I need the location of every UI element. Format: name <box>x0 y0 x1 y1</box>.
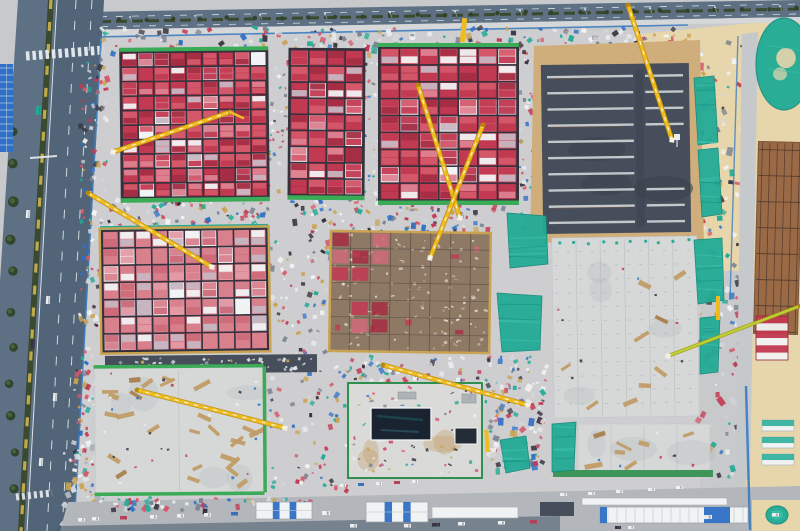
teal-east-b <box>700 316 720 374</box>
warehouse-c <box>432 507 518 518</box>
warehouse-b <box>366 502 428 522</box>
warehouse-a <box>256 502 312 519</box>
teal-east-a <box>694 238 724 304</box>
warehouse-roofline <box>582 498 727 505</box>
plot-scaffold-center <box>329 231 491 353</box>
plot-slab-east <box>552 236 699 418</box>
teal-strips-northeast-b <box>698 148 722 217</box>
warehouse-d <box>600 507 748 523</box>
aerial-construction-photo <box>0 0 800 531</box>
teal-strips-northeast-a <box>694 76 718 145</box>
plot-red-north-a <box>287 48 365 201</box>
plot-slab-southeast <box>578 424 716 472</box>
rebar-mat-east <box>753 141 800 334</box>
construction-site-scene <box>0 0 800 531</box>
plot-basement-south <box>348 383 482 478</box>
shed-dark <box>540 502 574 516</box>
roadside-building <box>0 64 13 152</box>
crane-mast-east <box>716 296 720 320</box>
plot-slab-southwest <box>94 364 270 496</box>
teal-center-south <box>497 293 542 352</box>
plot-dark-northeast <box>541 63 694 234</box>
site-huts-east <box>762 420 794 465</box>
plot-pink-west <box>100 224 271 354</box>
teal-center-north <box>507 213 548 268</box>
teal-southeast-edge <box>552 422 576 472</box>
net-band-southeast <box>553 470 713 477</box>
